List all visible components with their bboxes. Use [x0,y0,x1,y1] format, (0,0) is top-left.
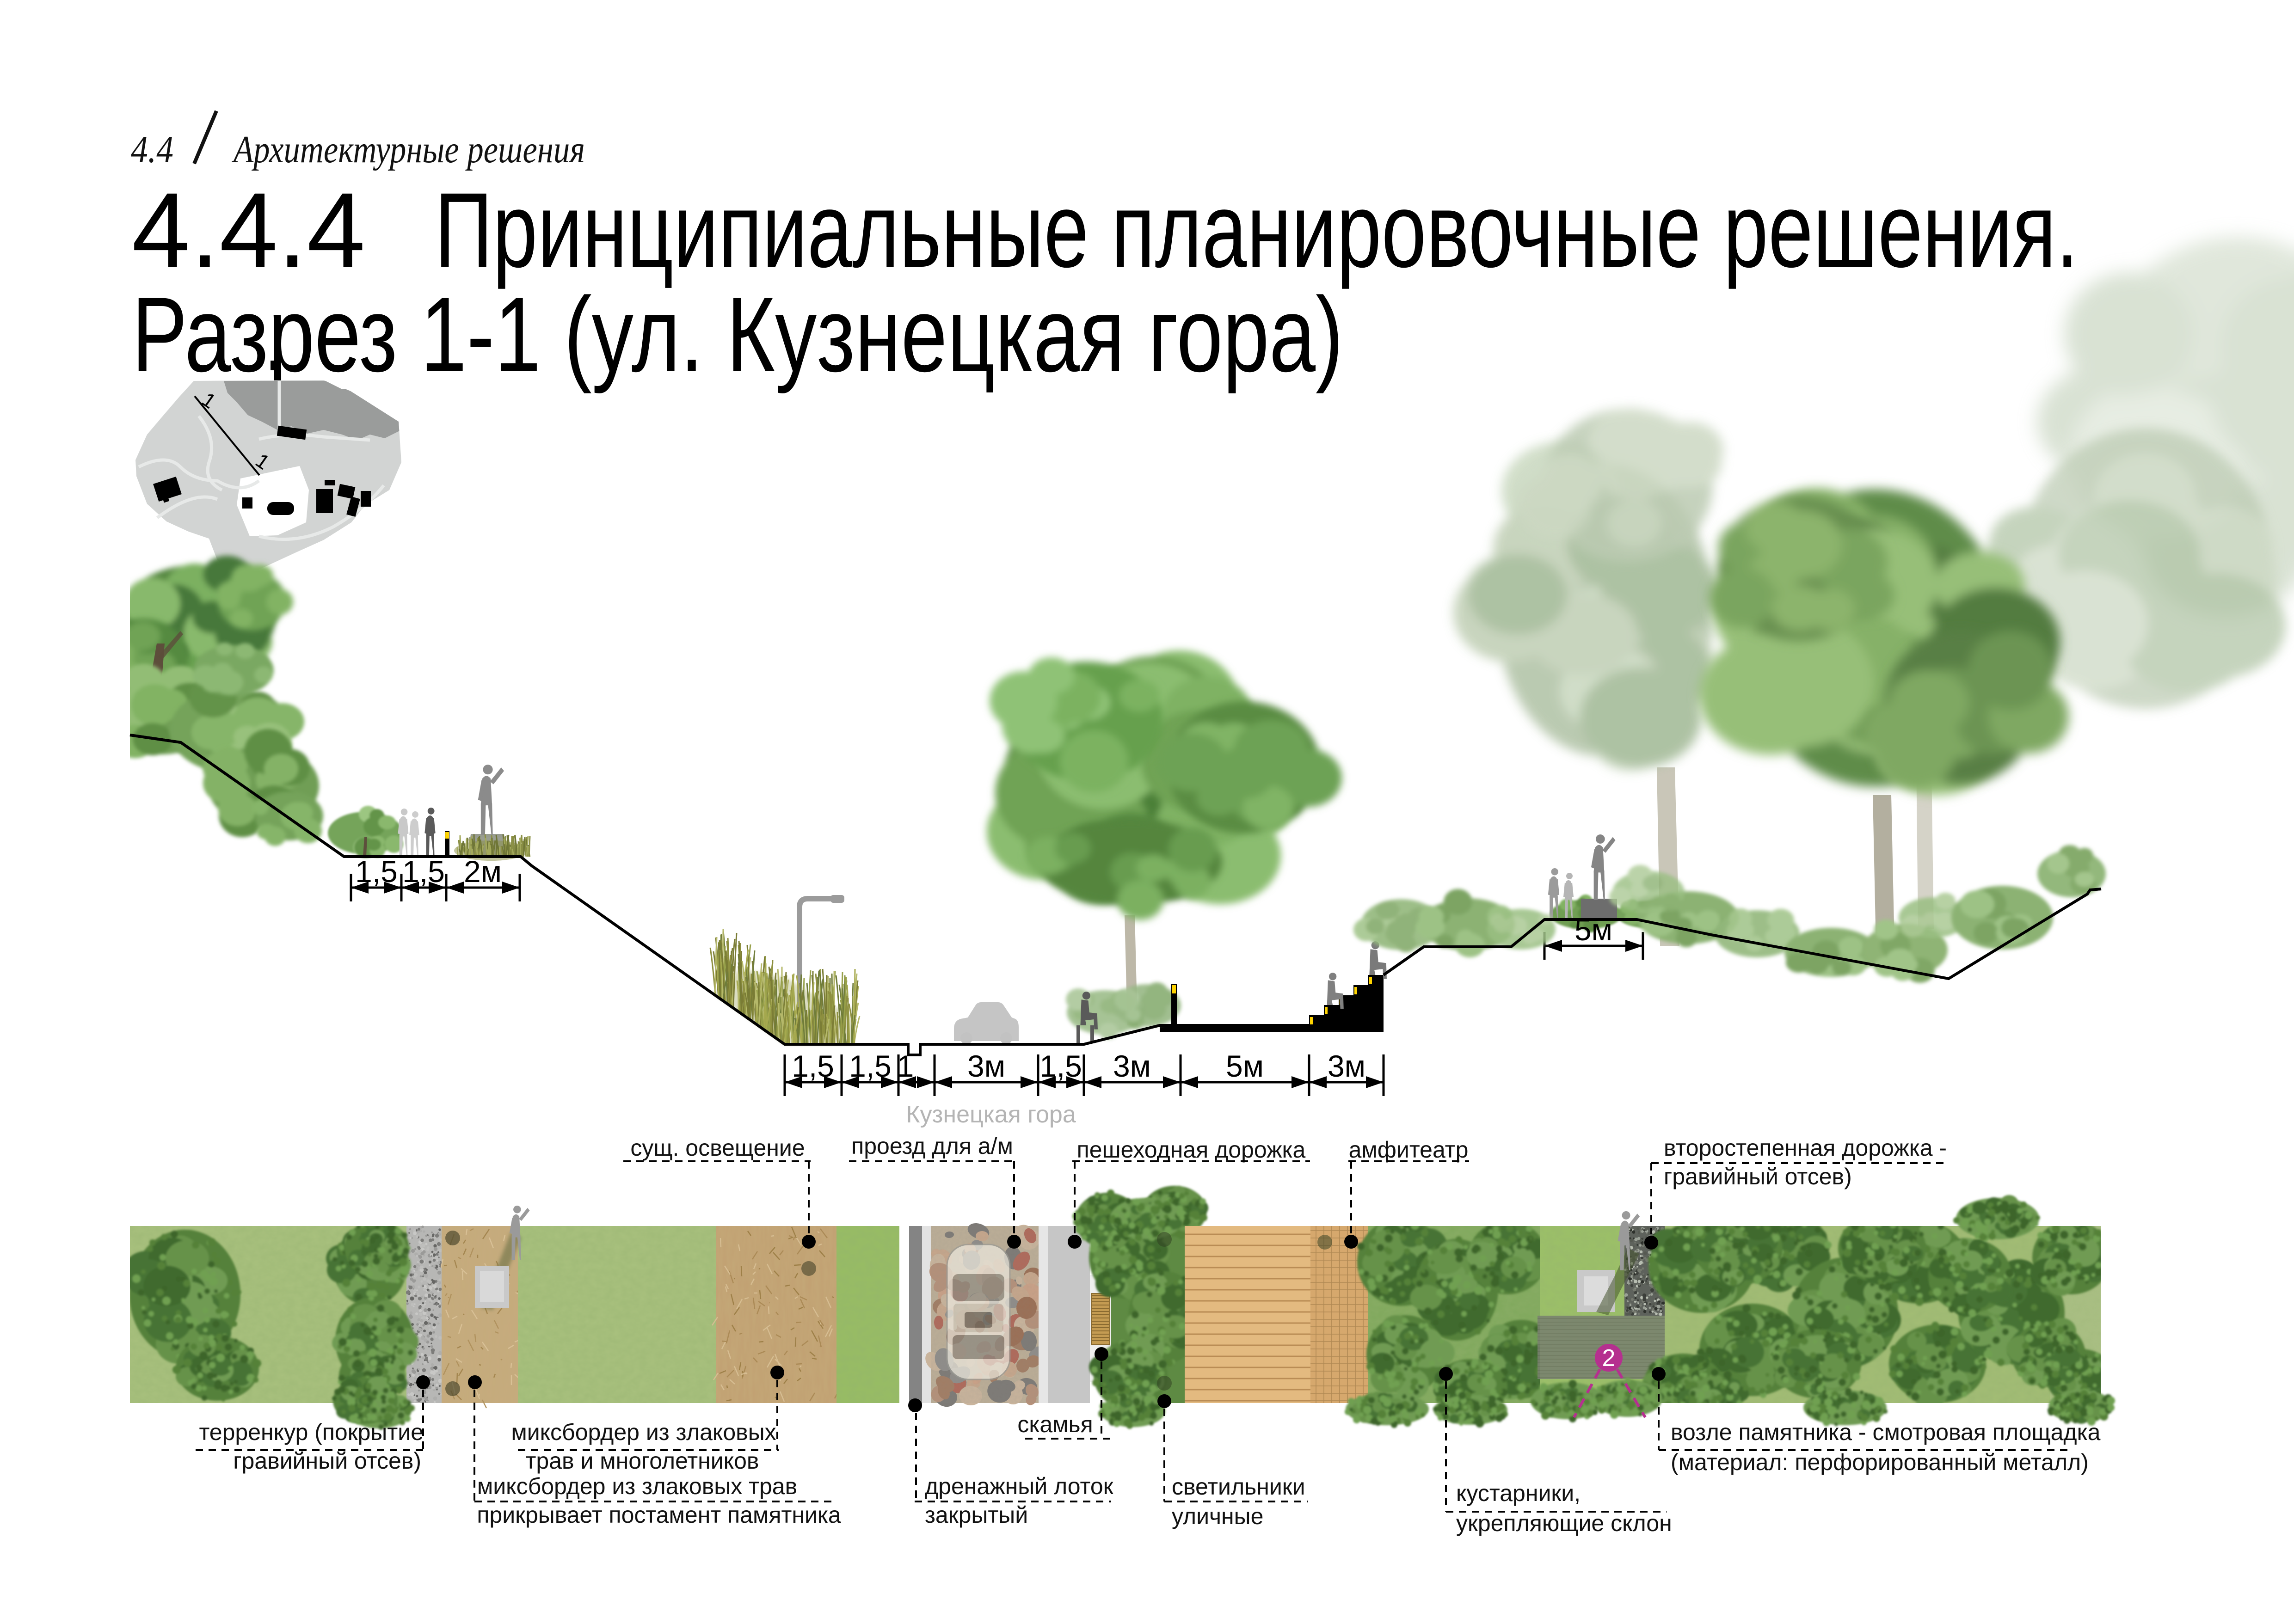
svg-text:Кузнецкая гора: Кузнецкая гора [906,1101,1076,1128]
svg-text:кустарники,: кустарники, [1456,1480,1581,1506]
svg-text:проезд для а/м: проезд для а/м [851,1133,1013,1159]
svg-text:3м: 3м [1113,1049,1151,1083]
svg-text:2м: 2м [464,854,502,889]
svg-text:второстепенная дорожка -: второстепенная дорожка - [1664,1135,1947,1161]
svg-text:Разрез 1-1 (ул. Кузнецкая гора: Разрез 1-1 (ул. Кузнецкая гора) [132,275,1343,394]
svg-text:терренкур (покрытие: терренкур (покрытие [199,1419,424,1445]
svg-text:2: 2 [1602,1345,1616,1372]
svg-text:(материал: перфорированный мет: (материал: перфорированный металл) [1671,1449,2089,1475]
svg-text:гравийный отсев): гравийный отсев) [233,1448,421,1474]
svg-text:уличные: уличные [1172,1503,1263,1529]
svg-text:пешеходная дорожка: пешеходная дорожка [1077,1137,1306,1163]
svg-text:скамья: скамья [1017,1411,1093,1437]
svg-text:Принципиальные планировочные р: Принципиальные планировочные решения. [435,171,2079,289]
svg-text:гравийный отсев): гравийный отсев) [1664,1164,1852,1189]
svg-text:прикрывает постамент памятника: прикрывает постамент памятника [477,1502,841,1528]
svg-text:возле памятника - смотровая пл: возле памятника - смотровая площадка [1671,1419,2101,1445]
svg-text:дренажный лоток: дренажный лоток [925,1473,1114,1499]
svg-text:1,5: 1,5 [849,1049,892,1083]
svg-text:4.4: 4.4 [131,128,173,171]
svg-text:укрепляющие склон: укрепляющие склон [1456,1510,1672,1536]
svg-text:5м: 5м [1226,1049,1264,1083]
svg-text:миксбордер из злаковых трав: миксбордер из злаковых трав [477,1473,797,1499]
svg-text:4.4.4: 4.4.4 [132,171,365,289]
svg-text:1,5: 1,5 [1039,1049,1082,1083]
svg-text:1,5: 1,5 [792,1049,834,1083]
svg-text:3м: 3м [1328,1049,1365,1083]
svg-text:1,5: 1,5 [402,854,445,889]
svg-text:1,5: 1,5 [355,854,398,889]
svg-text:Архитектурные решения: Архитектурные решения [232,128,585,171]
svg-text:миксбордер из злаковых: миксбордер из злаковых [511,1419,776,1445]
svg-text:сущ. освещение: сущ. освещение [630,1135,805,1161]
svg-text:амфитеатр: амфитеатр [1349,1137,1469,1163]
svg-text:закрытый: закрытый [925,1502,1028,1528]
svg-text:трав и многолетников: трав и многолетников [525,1448,759,1474]
svg-text:3м: 3м [967,1049,1005,1083]
svg-text:5м: 5м [1574,913,1612,947]
svg-text:светильники: светильники [1172,1474,1305,1500]
